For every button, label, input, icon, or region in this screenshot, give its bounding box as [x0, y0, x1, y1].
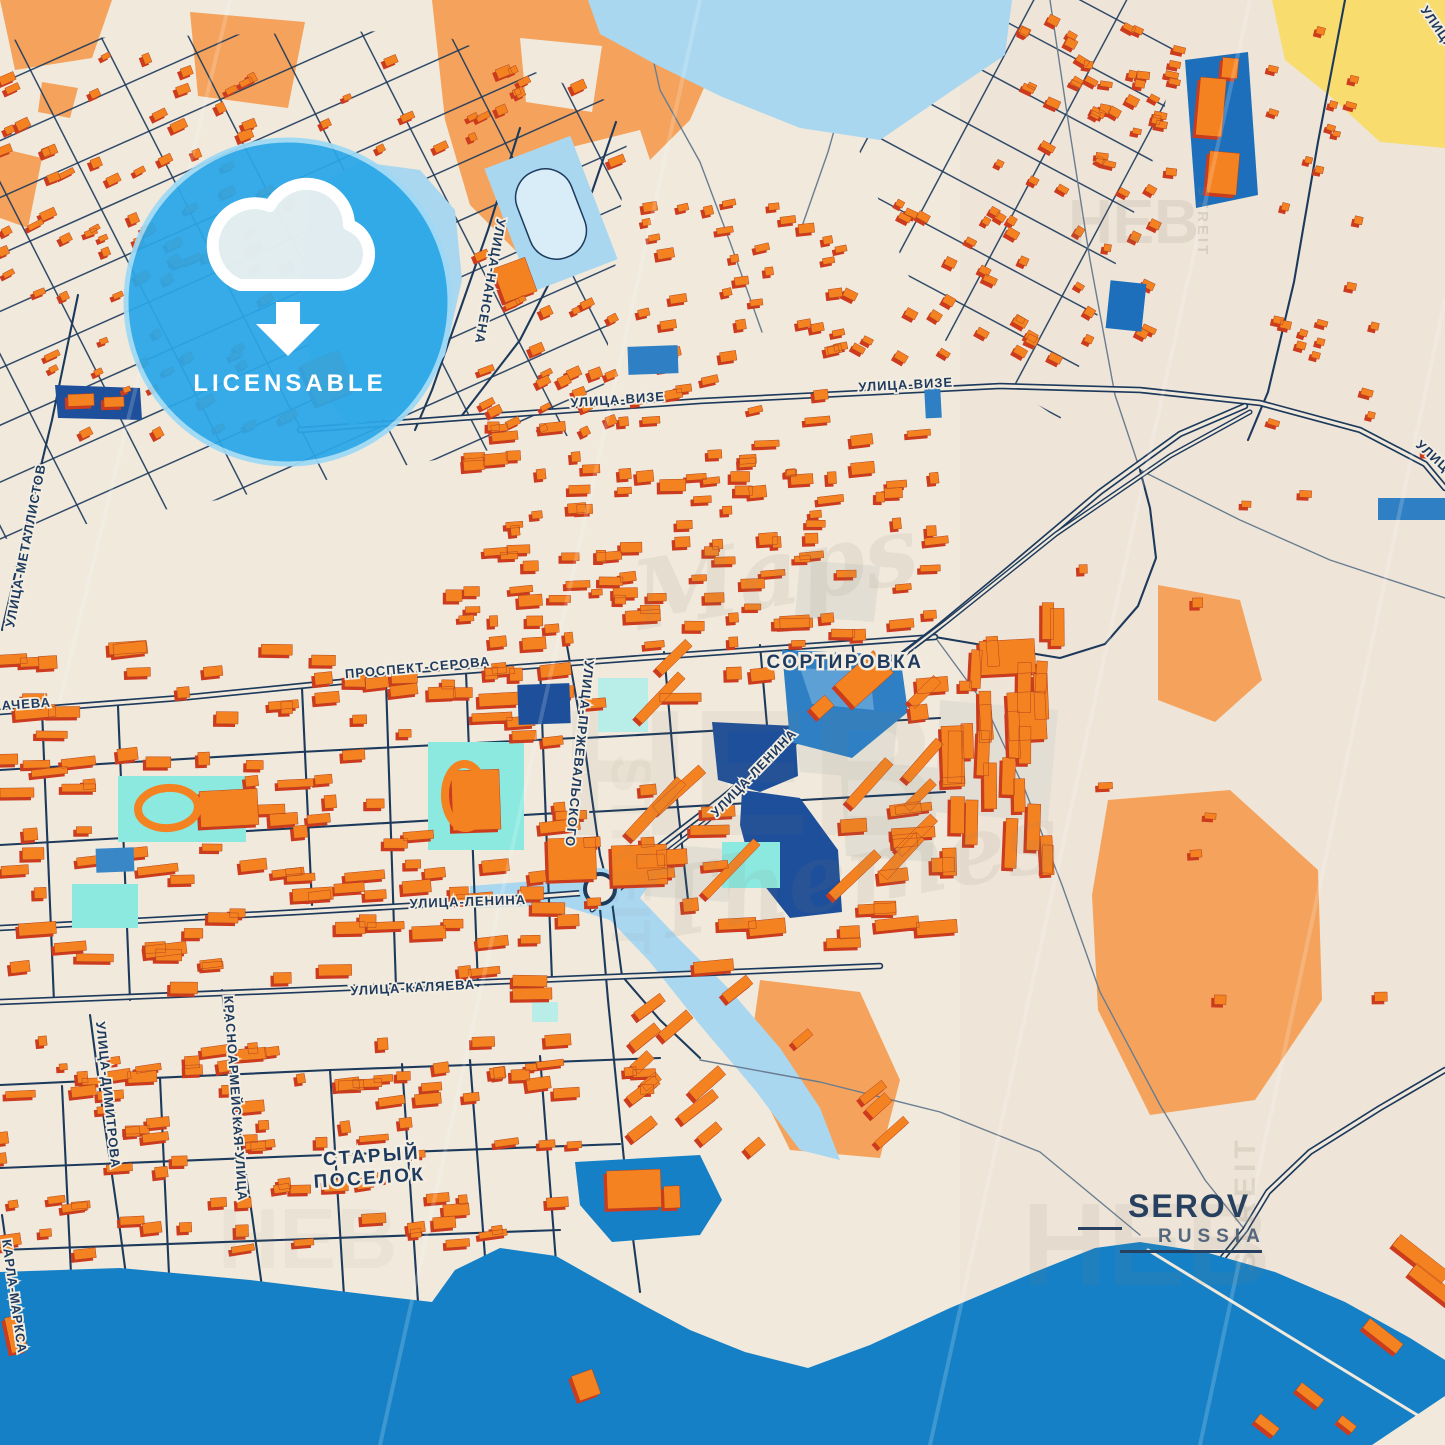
- map-poster: MapsHEBSTREITThemesHEBSTREITHEBSTREITHEB…: [0, 0, 1445, 1445]
- title-dash: [1120, 1250, 1262, 1253]
- place-label: СОРТИРОВКА: [767, 652, 924, 673]
- watermark-text: HEB: [218, 1192, 397, 1287]
- licensable-badge-label: LICENSABLE: [193, 370, 386, 398]
- country-subtitle: RUSSIA: [1158, 1226, 1266, 1248]
- watermark-text: STREIT: [1194, 186, 1211, 257]
- title-dash: [1078, 1227, 1122, 1230]
- city-title: SEROV: [1128, 1188, 1250, 1225]
- licensable-badge[interactable]: [126, 140, 450, 464]
- watermark-text: HEB: [1068, 188, 1199, 257]
